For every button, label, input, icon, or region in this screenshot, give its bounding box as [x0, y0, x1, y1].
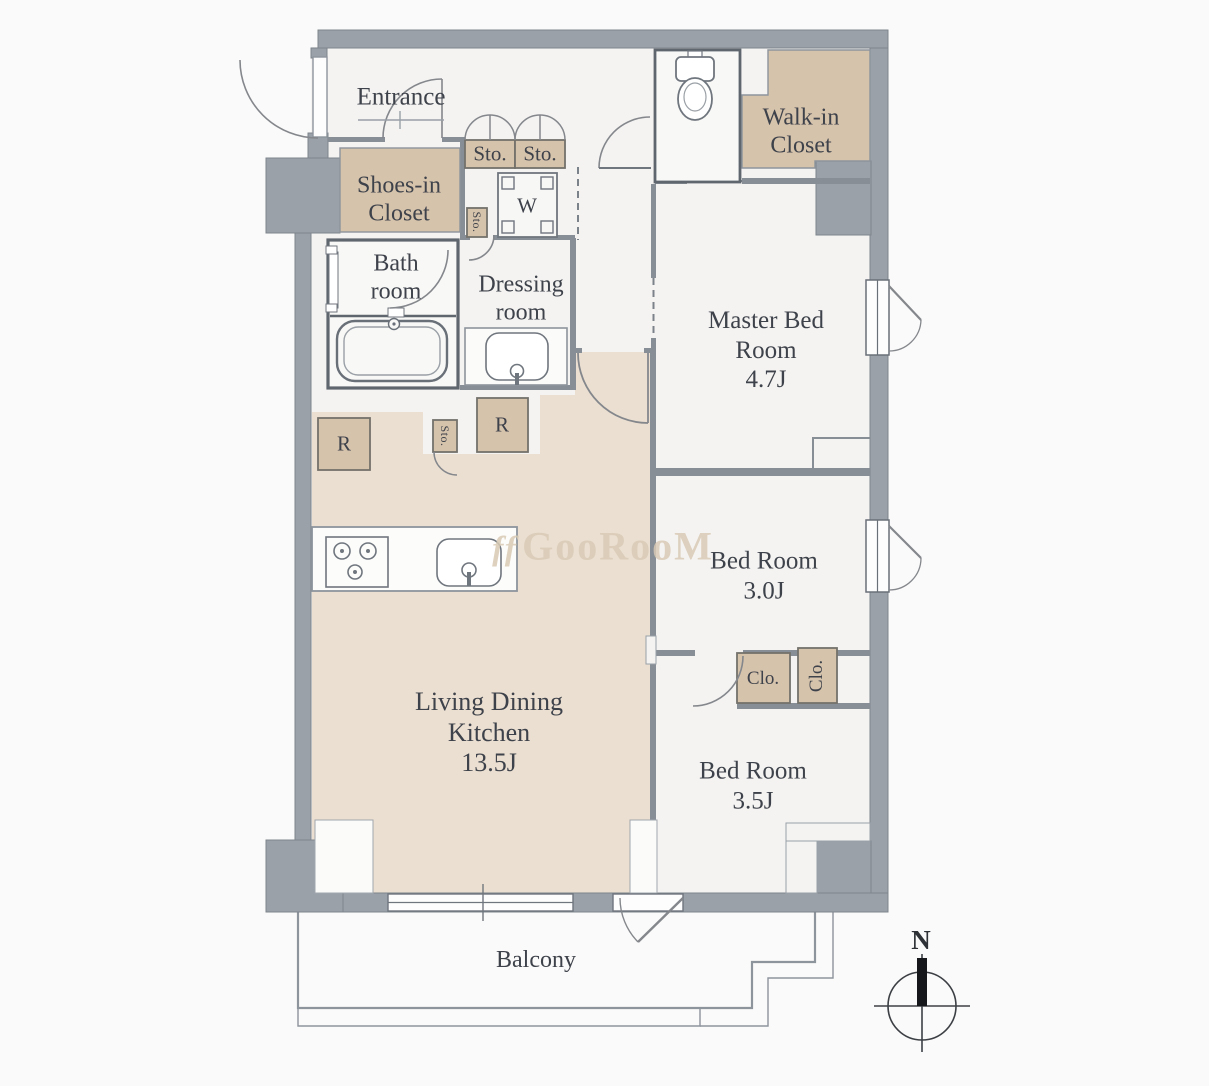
washer-label: W [517, 194, 537, 219]
walk-in-closet-label: Walk-in Closet [763, 104, 840, 161]
entrance-label: Entrance [357, 82, 446, 112]
entry-door-arc [240, 60, 318, 138]
floor-plan-page: ffGooRooM Entrance Shoes-in Closet Sto. … [0, 0, 1209, 1086]
watermark-text: GooRooM [522, 524, 714, 569]
fridge-right-label: R [495, 413, 509, 438]
hall-storage-label: Sto. [470, 211, 484, 232]
closet-v-label: Clo. [806, 660, 828, 692]
compass-north-needle [917, 958, 927, 1006]
balcony-door [613, 894, 683, 942]
bathroom-label: Bath room [371, 250, 422, 307]
bedroom2-label: Bed Room 3.0J [710, 547, 818, 606]
compass-north-label: N [911, 925, 931, 957]
watermark: ffGooRooM [492, 523, 714, 570]
compass-icon [874, 954, 970, 1052]
ldk-label: Living Dining Kitchen 13.5J [415, 687, 563, 779]
bath-window [329, 252, 338, 308]
shoes-in-closet-label: Shoes-in Closet [357, 172, 441, 229]
closet-h-label: Clo. [747, 668, 779, 690]
casement-window-bottom [866, 520, 921, 592]
kitchen-storage-label: Sto. [438, 425, 452, 446]
casement-window-top [866, 280, 921, 355]
ldk-opening-jamb [646, 636, 656, 664]
balcony-label: Balcony [496, 946, 576, 974]
entry-door-leaf [313, 57, 327, 137]
storage-right-label: Sto. [523, 142, 556, 167]
master-bedroom-label: Master Bed Room 4.7J [708, 306, 824, 395]
watermark-glyph: ff [492, 531, 518, 568]
fridge-left-label: R [337, 432, 351, 457]
storage-left-label: Sto. [473, 142, 506, 167]
dressing-room-label: Dressing room [478, 271, 563, 328]
bathtub-icon [337, 321, 447, 381]
bedroom3-label: Bed Room 3.5J [699, 757, 807, 816]
